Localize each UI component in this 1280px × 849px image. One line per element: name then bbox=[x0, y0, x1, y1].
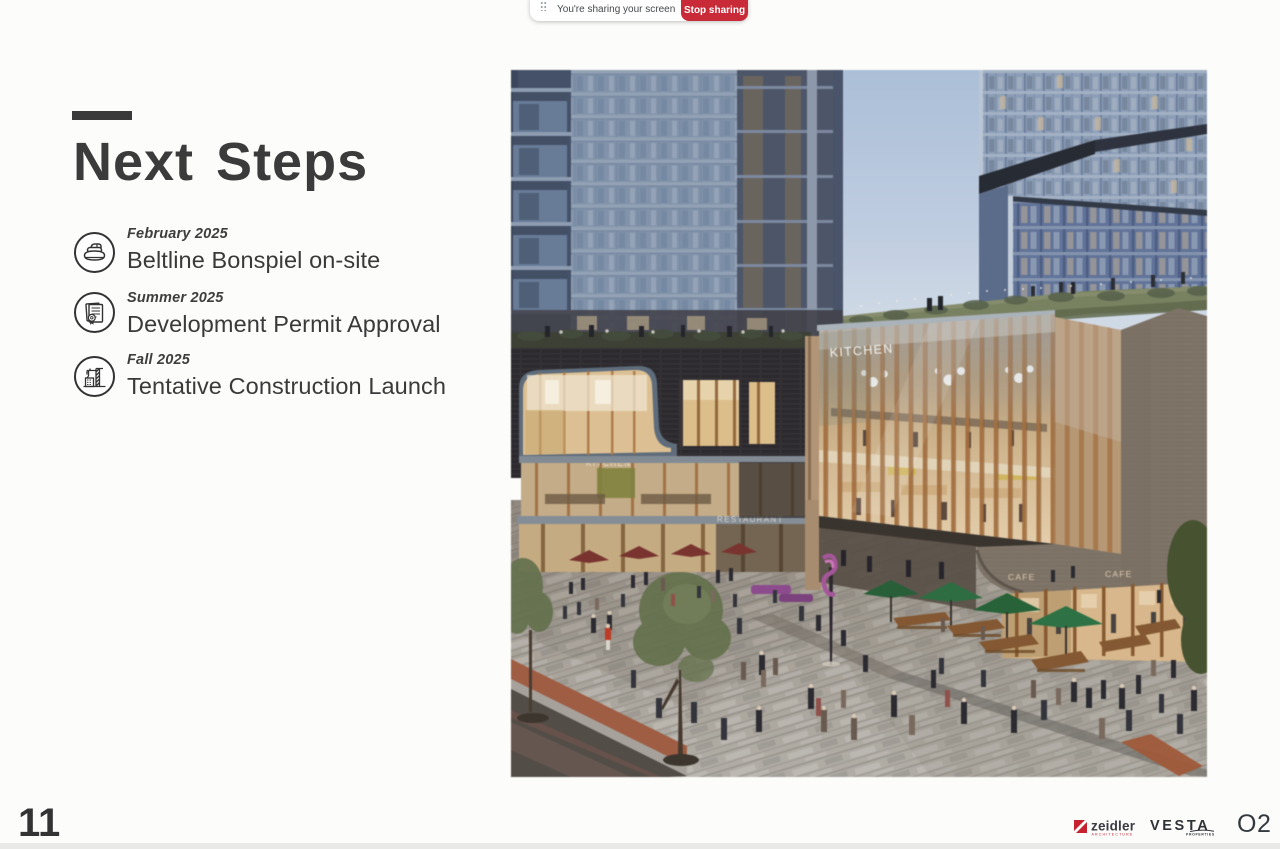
svg-text:zeidler: zeidler bbox=[1091, 819, 1136, 834]
svg-text:ARCHITECTURE: ARCHITECTURE bbox=[1092, 833, 1134, 837]
svg-text:CAFE: CAFE bbox=[1008, 572, 1035, 582]
svg-text:PROPERTIES: PROPERTIES bbox=[1186, 833, 1215, 837]
svg-text:CAFE: CAFE bbox=[1105, 569, 1132, 579]
